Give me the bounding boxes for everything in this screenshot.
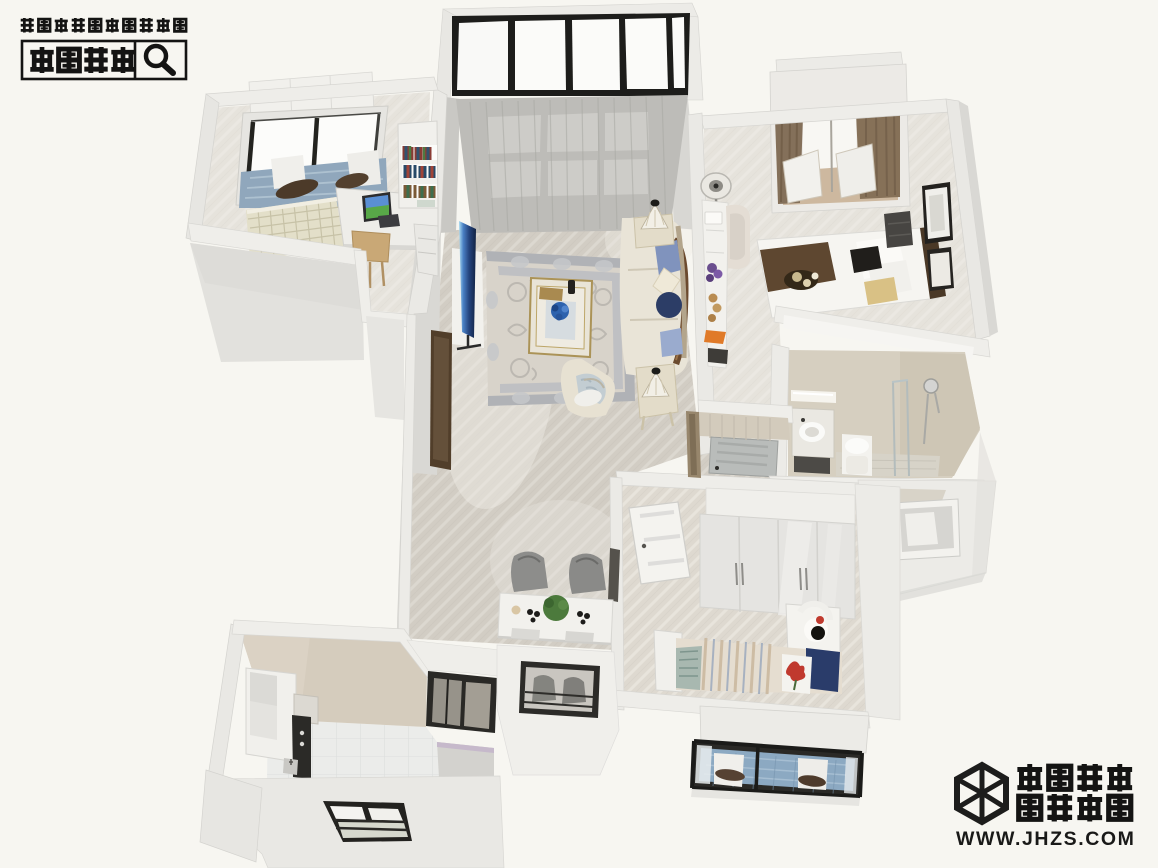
svg-text:WWW.JHZS.COM: WWW.JHZS.COM <box>956 828 1136 850</box>
